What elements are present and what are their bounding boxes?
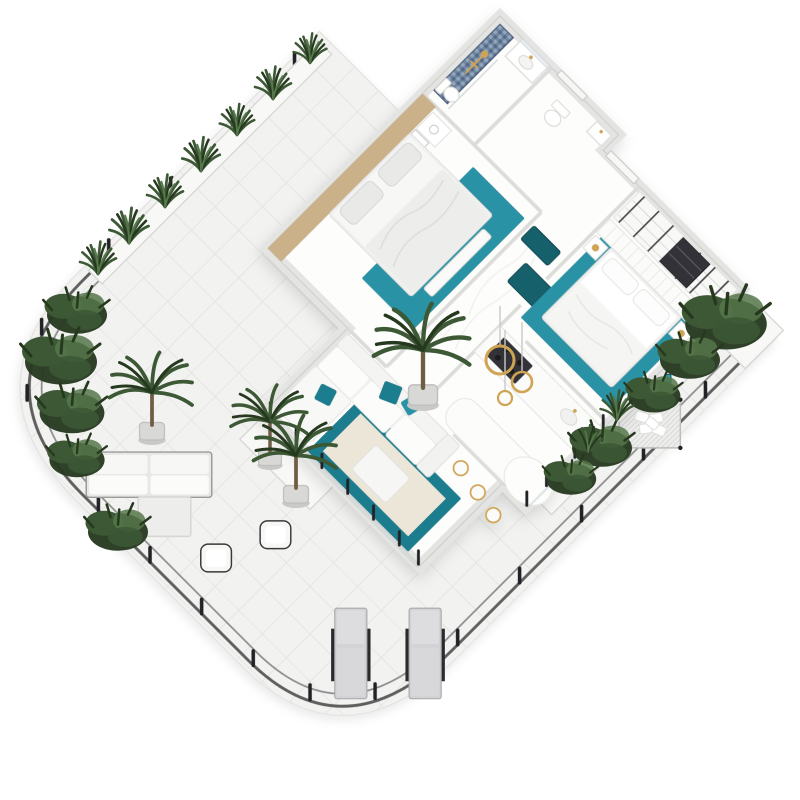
floorplan-render	[0, 0, 800, 800]
outdoor-chair	[260, 521, 291, 549]
coffee-table	[138, 497, 191, 536]
outdoor-chair	[201, 544, 232, 572]
sun-lounger	[331, 608, 370, 699]
outdoor-sofa	[86, 452, 212, 497]
isometric-floorplan-svg	[0, 0, 800, 800]
sun-lounger	[405, 608, 444, 699]
